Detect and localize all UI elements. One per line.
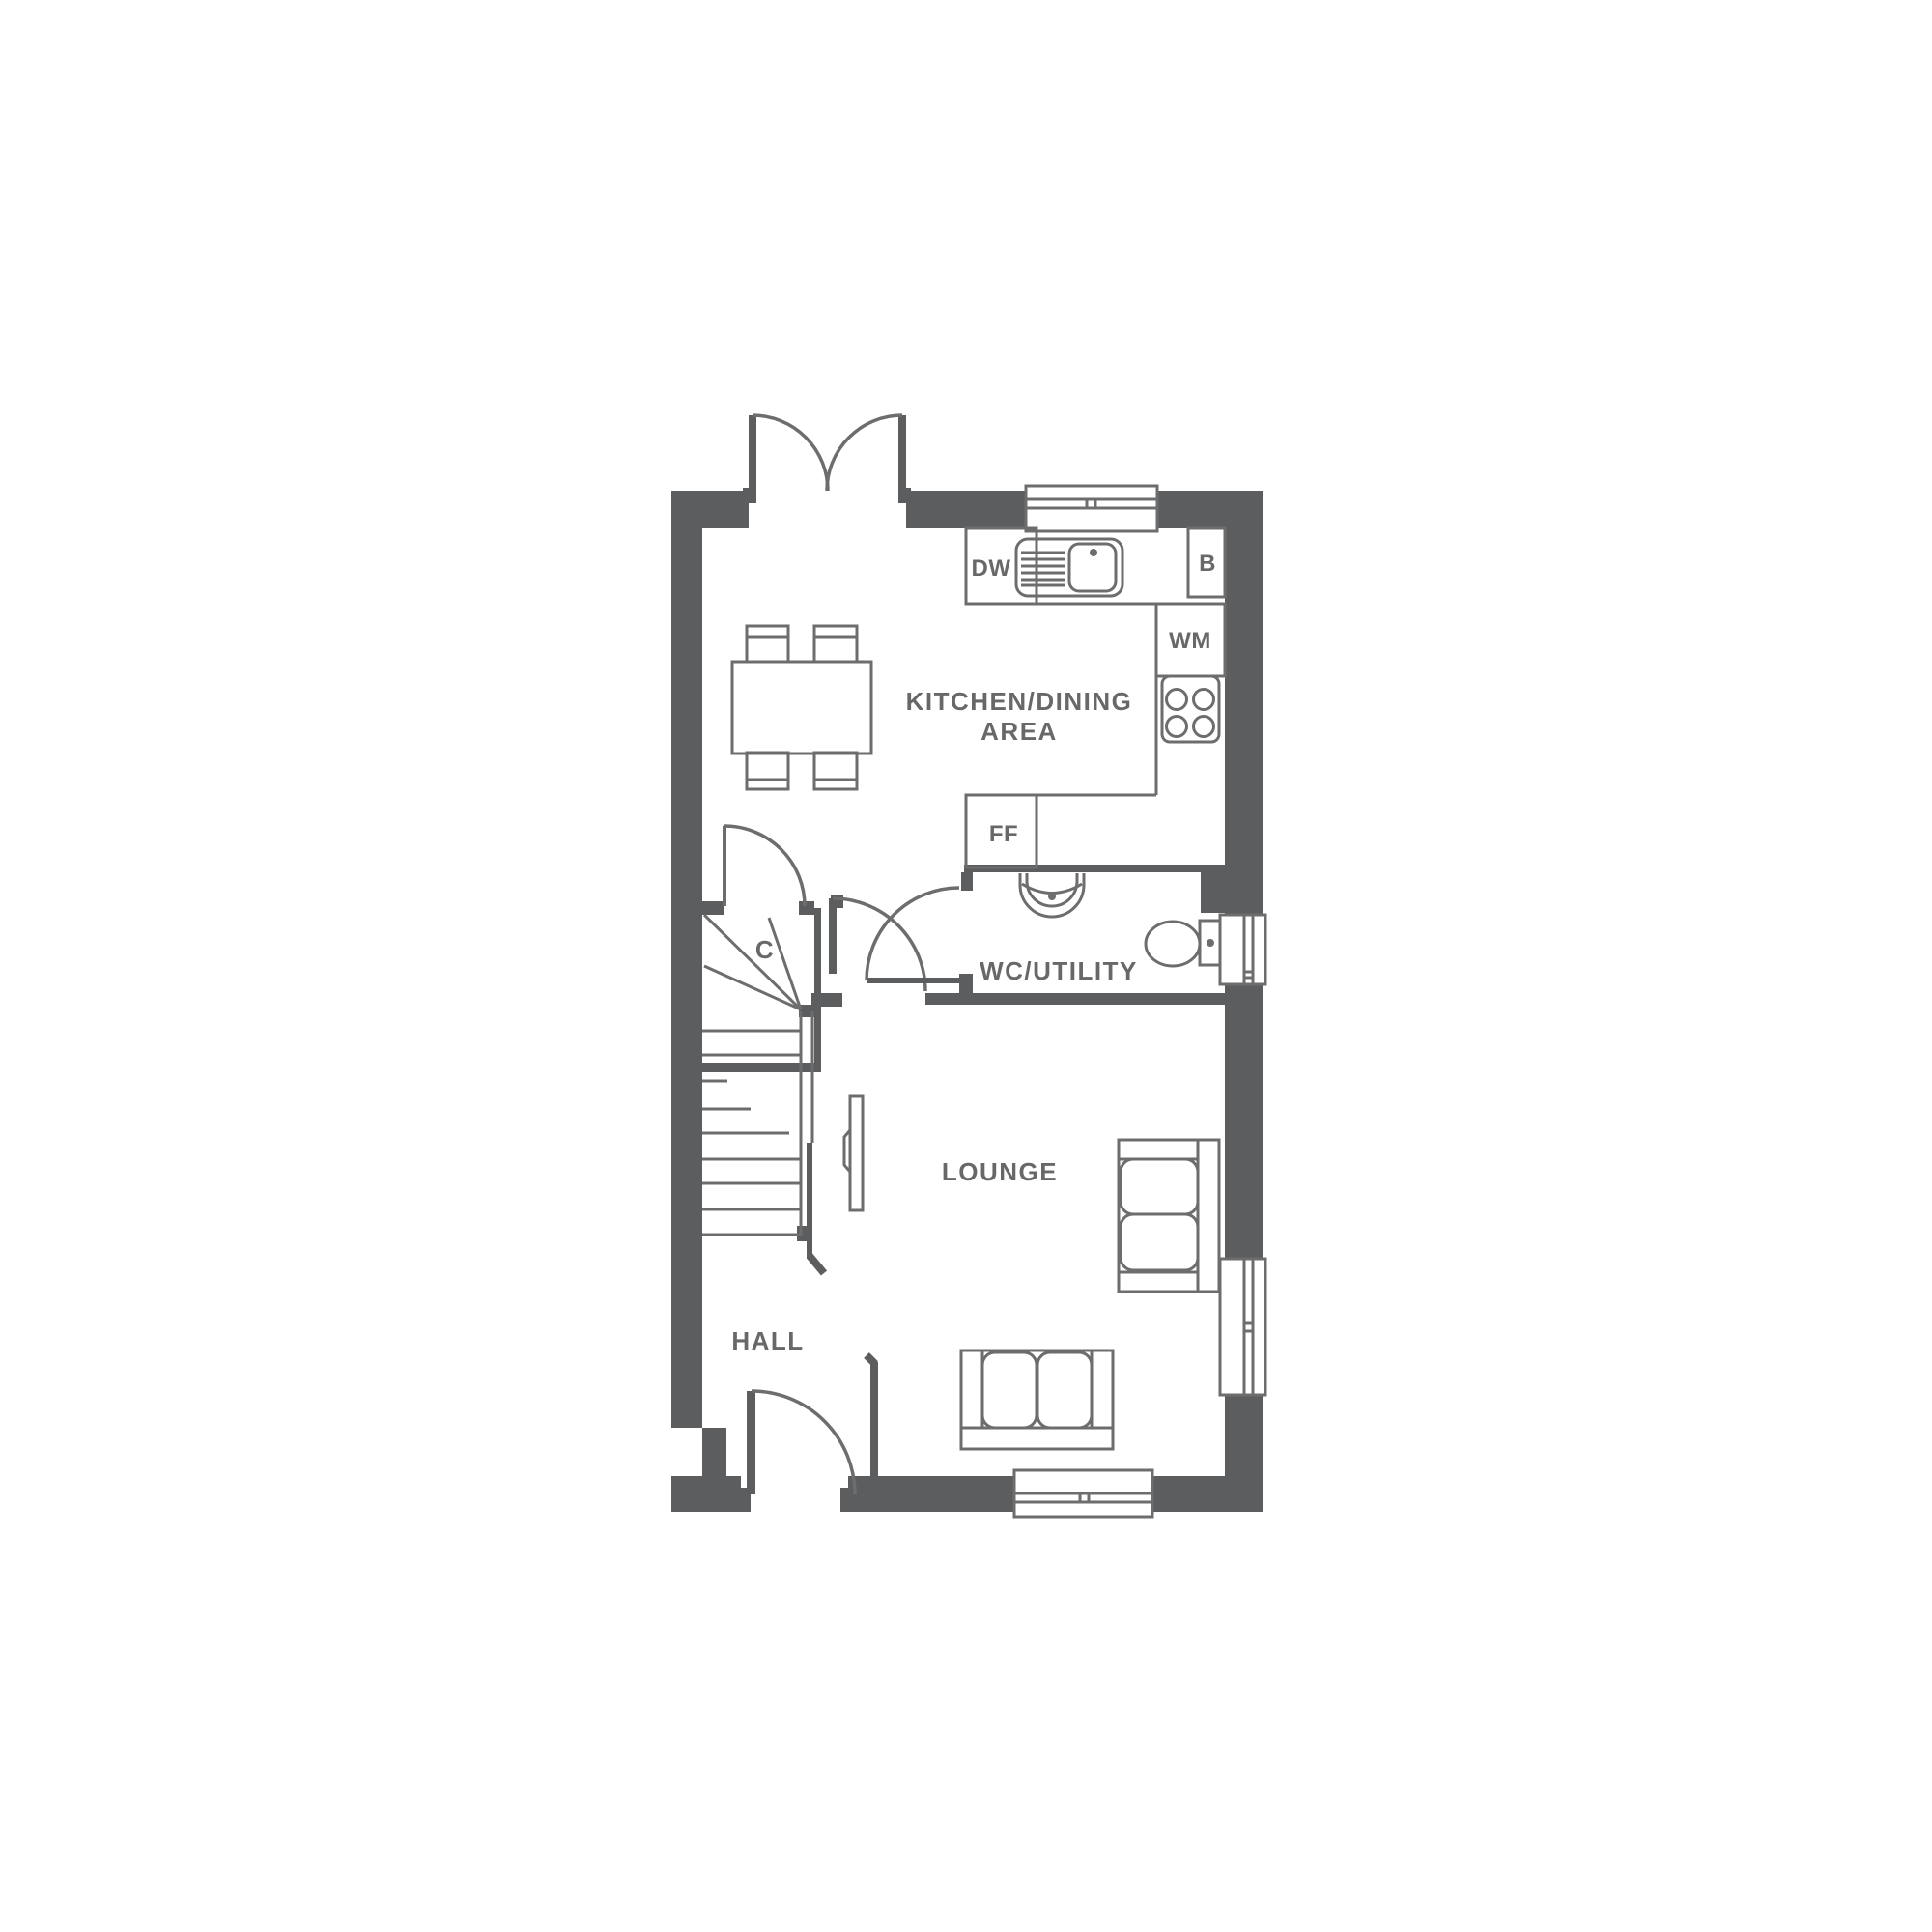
label-dishwasher: DW: [972, 555, 1011, 582]
dining-set: [732, 626, 871, 789]
toilet-bowl: [1146, 922, 1200, 966]
wall-right-mid: [1225, 984, 1263, 1259]
label-boiler: B: [1199, 551, 1216, 577]
label-cupboard: C: [755, 935, 775, 964]
lounge-bottom-window: [1014, 1470, 1152, 1517]
kitchen-window: [1026, 486, 1157, 531]
basin-tap: [1048, 893, 1056, 900]
sofa-armrest: [1119, 1272, 1198, 1292]
hob: [1162, 676, 1219, 742]
french-doors: [743, 415, 911, 503]
toilet: [1146, 921, 1220, 966]
tv-unit: [844, 1096, 863, 1210]
lounge-door: [829, 898, 925, 991]
front-door-jamb-right: [840, 1488, 852, 1512]
wc-door-jamb: [961, 872, 973, 891]
front-door: [747, 1391, 855, 1494]
label-washing-machine: WM: [1169, 628, 1211, 654]
front-door-swing: [752, 1391, 855, 1494]
stair-mid-band: [702, 1063, 814, 1072]
label-kitchen-dining-line1: KITCHEN/DINING: [906, 687, 1133, 716]
sink-tap: [1090, 549, 1097, 556]
wc-door-swing: [867, 888, 959, 980]
sofa-armrest: [961, 1350, 982, 1428]
sink-drainer-lines: [1021, 553, 1065, 585]
sofa-right: [1119, 1140, 1219, 1292]
floor-plan: KITCHEN/DINING AREA WC/UTILITY LOUNGE HA…: [0, 0, 1932, 1932]
cupboard-right-wall: [814, 908, 821, 1072]
label-kitchen-dining-line2: AREA: [980, 717, 1058, 746]
lounge-side-window: [1220, 1259, 1265, 1395]
wall-left: [671, 491, 702, 1428]
label-wc-utility: WC/UTILITY: [980, 956, 1138, 985]
cupboard-jamb-right: [799, 901, 814, 915]
stair-treads: [702, 1031, 802, 1235]
french-door-left-leaf: [749, 415, 756, 496]
wall-bottom-right: [1152, 1476, 1263, 1512]
wc-window: [1220, 915, 1265, 984]
french-door-right-swing: [827, 415, 902, 491]
floor-plan-page: KITCHEN/DINING AREA WC/UTILITY LOUNGE HA…: [0, 0, 1932, 1932]
wc-basin: [1020, 873, 1084, 917]
french-door-right-nub: [898, 488, 911, 503]
wall-top-left: [671, 491, 749, 528]
hall-stub-diagonal: [867, 1355, 875, 1364]
sofa-armrest: [1092, 1350, 1113, 1428]
label-lounge: LOUNGE: [942, 1157, 1058, 1186]
tv: [850, 1096, 863, 1210]
cupboard-door: [723, 826, 805, 906]
dining-chair: [814, 626, 857, 663]
label-hall: HALL: [731, 1326, 804, 1355]
lounge-door-leaf: [829, 898, 837, 974]
cupboard-jamb-left: [702, 901, 724, 915]
lounge-door-swing: [833, 898, 925, 991]
cupboard-door-swing: [724, 826, 805, 906]
sofa-armrest: [1119, 1140, 1198, 1159]
dining-chair: [814, 753, 857, 789]
front-door-leaf: [747, 1391, 755, 1494]
dining-chair: [747, 753, 788, 789]
wall-right-upper: [1225, 491, 1263, 915]
french-door-left-swing: [753, 415, 828, 491]
wc-door-leaf: [867, 978, 959, 983]
sofa-bottom: [961, 1350, 1113, 1449]
sofa-back: [1198, 1140, 1219, 1292]
label-fridge-freezer: FF: [989, 821, 1018, 847]
wall-bottom-left-corner: [671, 1476, 741, 1512]
wall-top-mid: [906, 491, 1026, 528]
dining-table: [732, 662, 871, 753]
sofa-base: [961, 1428, 1113, 1449]
wall-hall-lounge-stub: [870, 1362, 878, 1476]
kitchen-sink: [1016, 539, 1122, 596]
cupboard-door-leaf: [723, 826, 726, 906]
french-door-left-nub: [743, 488, 756, 503]
french-door-right-leaf: [898, 415, 906, 496]
wall-kitchen-corner-block: [1201, 865, 1225, 913]
wc-door: [867, 888, 959, 983]
wall-bottom-mid: [848, 1476, 1014, 1512]
understairs-slope-lines: [704, 915, 801, 1009]
wc-door-block: [959, 974, 973, 1005]
dining-chair: [747, 626, 788, 663]
